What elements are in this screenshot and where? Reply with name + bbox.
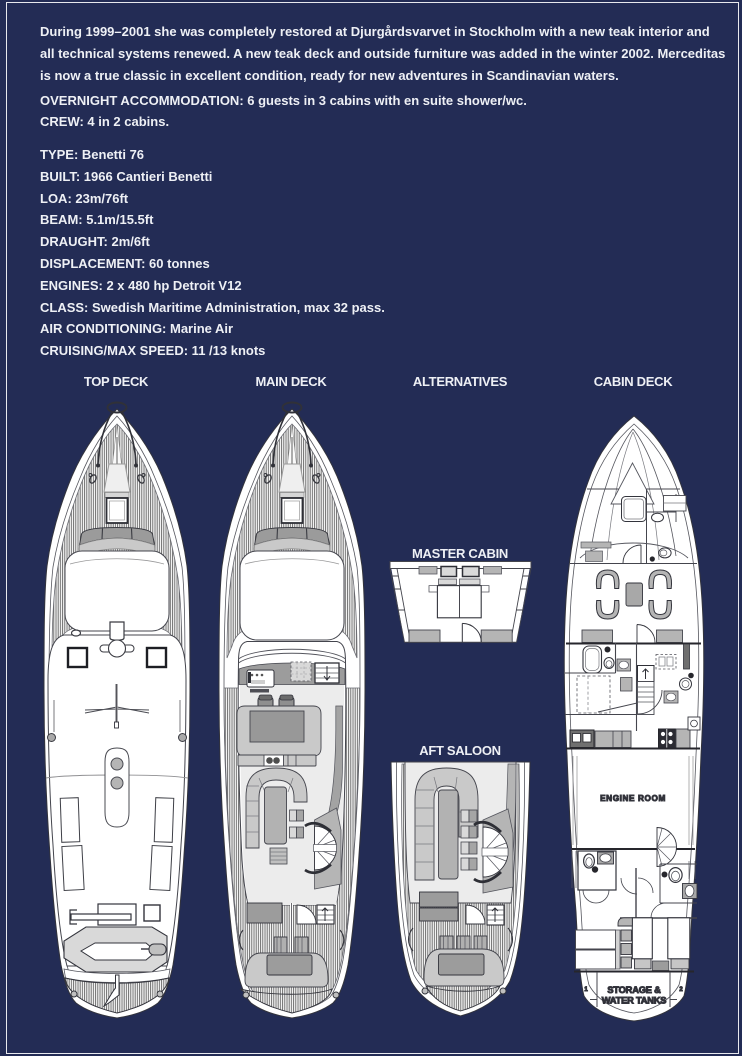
svg-text:WATER TANKS: WATER TANKS xyxy=(602,996,667,1006)
svg-text:ENGINE ROOM: ENGINE ROOM xyxy=(600,794,666,803)
svg-text:STORAGE &: STORAGE & xyxy=(607,985,661,995)
